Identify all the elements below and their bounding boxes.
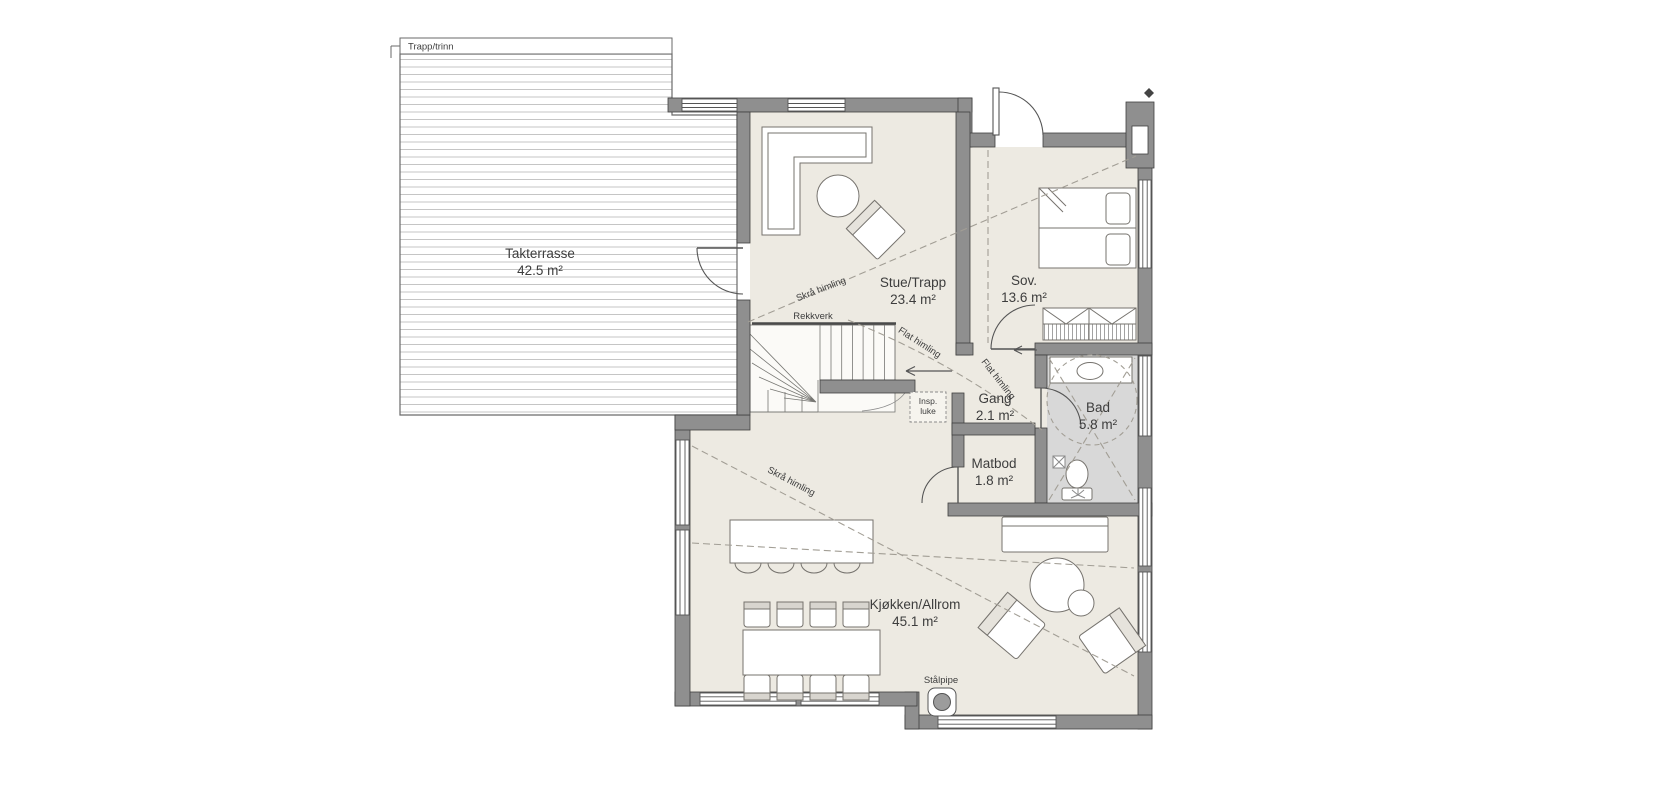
wall-pantry-north [952,423,1035,435]
label-living-area: 23.4 m² [890,292,936,307]
north-marker-icon [1144,88,1154,98]
window-north-1 [682,99,737,111]
window-north-2 [788,99,845,111]
door-entry-north [993,88,1043,135]
wall-hall-stub [956,343,973,355]
label-kitchen-area: 45.1 m² [892,614,938,629]
window-west-2 [676,530,689,615]
window-east-bedroom [1139,180,1151,268]
label-bedroom-area: 13.6 m² [1001,290,1047,305]
wall-kitchen-north [675,415,750,430]
steel-chimney-icon [928,688,956,716]
window-east-kitchen-1 [1139,488,1151,566]
coffee-table-small [1068,590,1094,616]
floor-drain-icon [1053,456,1065,468]
bed-pillow-1 [1106,193,1130,224]
stair-area [750,325,895,412]
terrace-step-mark [391,46,400,58]
window-east-bath [1139,356,1151,436]
sofa-kitchen [1002,517,1108,552]
wardrobe [1043,308,1136,340]
wall-west-living-b [737,300,750,415]
terrace-stairs-label: Trapp/trinn [408,42,454,53]
wall-living-bedroom [956,112,970,355]
inspection-hatch-label-2: luke [920,406,936,416]
label-kitchen-name: Kjøkken/Allrom [870,597,961,612]
wall-bedroom-bath [1035,343,1152,355]
wall-west-living-a [737,112,750,243]
staircase [750,324,908,413]
railing-label: Rekkverk [793,311,833,322]
round-table-living [817,175,859,217]
sink-basin [1077,363,1103,380]
steel-chimney-label: Stålpipe [924,675,958,686]
kitchen-island [730,520,873,563]
floorplan-canvas: Trapp/trinn [0,0,1670,800]
bed-pillow-2 [1106,234,1130,265]
inspection-hatch-label-1: Insp. [919,396,937,406]
window-south-right [938,716,1056,728]
dining-table [743,630,880,675]
label-bath-name: Bad [1086,400,1110,415]
label-hall-area: 2.1 m² [976,408,1015,423]
label-pantry-area: 1.8 m² [975,473,1014,488]
wall-bath-west-b [1035,428,1047,503]
wall-south-bathblock [948,503,1152,516]
wall-understairs [820,380,915,393]
chimney-flue [1132,126,1148,154]
label-pantry-name: Matbod [971,456,1016,471]
label-terrace-area: 42.5 m² [517,263,563,278]
wall-bath-west-a [1035,355,1047,388]
label-bath-area: 5.8 m² [1079,417,1118,432]
label-bedroom-name: Sov. [1011,273,1037,288]
bed [1039,188,1136,268]
window-west-1 [676,440,689,525]
label-living-name: Stue/Trapp [880,275,946,290]
roof-terrace: Trapp/trinn [391,38,737,415]
label-terrace-name: Takterrasse [505,246,575,261]
inspection-hatch: Insp. luke [910,392,946,422]
floorplan-drawing: Trapp/trinn [0,0,1670,800]
